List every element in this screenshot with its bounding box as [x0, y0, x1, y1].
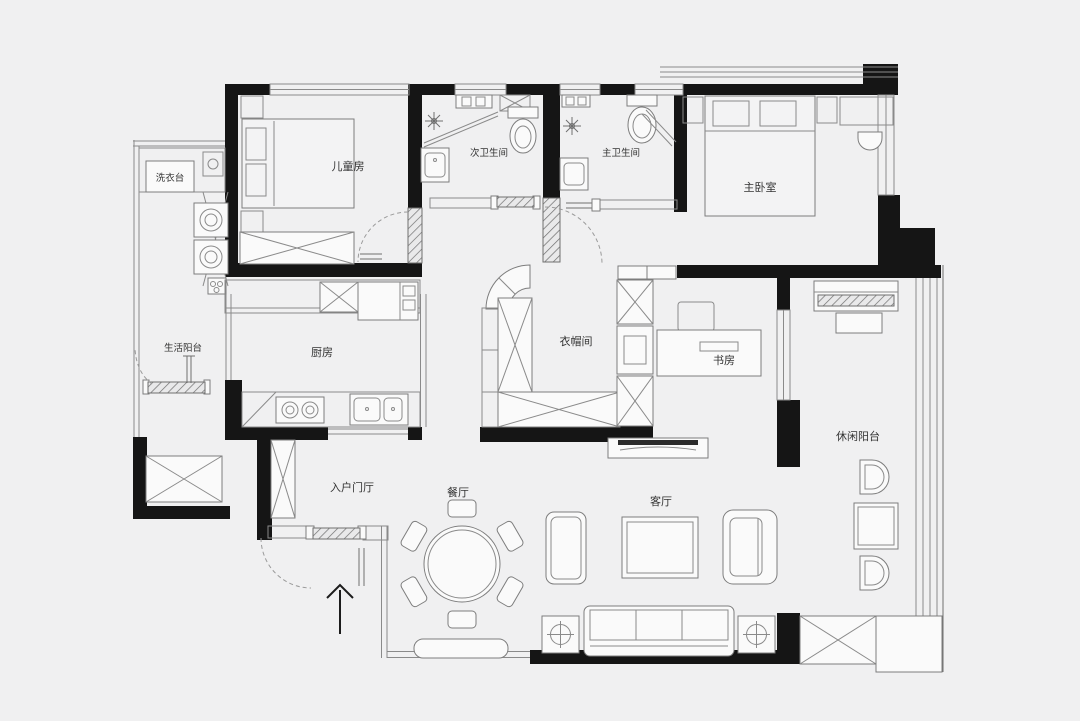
utility-sink — [203, 152, 223, 176]
tea-table — [854, 503, 898, 549]
room-label-children-room: 儿童房 — [332, 159, 365, 173]
nightstand — [817, 97, 837, 123]
piano-keys — [818, 295, 894, 306]
entry-door-swing-arc — [261, 538, 311, 588]
children-room-door-pocket — [408, 208, 422, 263]
room-label-entry-foyer: 入户门厅 — [330, 480, 374, 494]
study-chair — [678, 302, 714, 331]
service-balcony-door — [148, 382, 205, 393]
meter-box — [208, 278, 226, 294]
room-label-kitchen: 厨房 — [311, 346, 333, 359]
stove — [276, 397, 324, 423]
room-label-living-room: 客厅 — [650, 494, 672, 508]
dining-bench — [414, 639, 508, 658]
dryer — [194, 240, 228, 274]
sideboard — [546, 512, 586, 584]
entry-door — [313, 528, 360, 539]
master-bedroom-zone — [683, 96, 893, 216]
three-seat-sofa — [584, 606, 734, 656]
study-zone — [657, 302, 761, 376]
room-label-dining-room: 餐厅 — [447, 485, 469, 499]
toilet-tank — [508, 107, 538, 118]
service-balcony-zone — [139, 148, 228, 502]
round-dining-table — [424, 526, 500, 602]
balcony-corner-box — [876, 616, 942, 672]
master-suite-door-pocket — [543, 198, 560, 262]
room-label-laundry: 洗衣台 — [156, 172, 185, 184]
shower-head-icon — [425, 112, 443, 130]
room-label-master-bath: 主卫生间 — [602, 147, 640, 159]
shower-head-icon — [563, 117, 581, 135]
bathroom-sliding-door — [497, 197, 534, 207]
tv — [618, 440, 698, 445]
leisure-balcony-zone — [800, 281, 942, 672]
room-label-cloakroom: 衣帽间 — [560, 334, 593, 348]
nightstand — [241, 211, 263, 233]
room-label-study: 书房 — [713, 354, 735, 367]
study-desk — [657, 330, 761, 376]
nightstand — [241, 96, 263, 118]
side-cabinet-strip — [482, 308, 498, 427]
floor-plan-drawing: 洗衣台 儿童房 次卫生间 主卫生间 主卧室 生活阳台 厨房 衣帽间 书房 休闲阳… — [0, 0, 1080, 721]
children-room-zone — [240, 96, 354, 264]
piano-bench — [836, 313, 882, 333]
dressing-desk — [840, 97, 893, 125]
room-label-secondary-bath: 次卫生间 — [470, 147, 508, 159]
room-label-master-bedroom: 主卧室 — [744, 180, 777, 194]
toilet-tank — [627, 95, 657, 106]
service-balcony-door-arc — [135, 348, 152, 384]
room-label-service-balcony: 生活阳台 — [164, 342, 202, 354]
coffee-table — [622, 517, 698, 578]
secondary-bathroom-zone — [421, 95, 538, 182]
cabinet-column-mid — [617, 326, 653, 374]
master-bathroom-zone — [560, 95, 676, 190]
entry-direction-arrow-icon — [327, 585, 353, 634]
floor-plan-canvas: 洗衣台 儿童房 次卫生间 主卫生间 主卧室 生活阳台 厨房 衣帽间 书房 休闲阳… — [0, 0, 1080, 721]
room-label-leisure-balcony: 休闲阳台 — [836, 429, 880, 443]
washing-machine — [194, 203, 228, 237]
tall-cabinet — [358, 282, 418, 320]
